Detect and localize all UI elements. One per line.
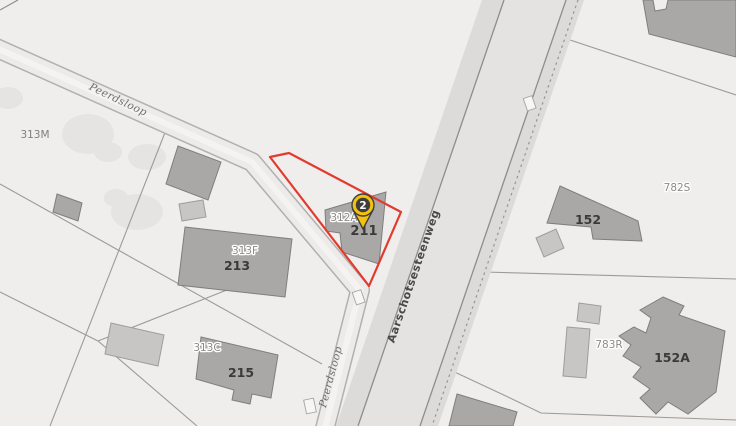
parcel-label-313F: 313F (232, 245, 258, 257)
marker-pin-number: 2 (359, 200, 366, 212)
parcel-label-313M: 313M (20, 129, 49, 141)
building (577, 303, 601, 324)
parcel-label-782S: 782S (664, 182, 691, 194)
building (179, 200, 206, 221)
map-viewport[interactable]: 313M 313F 213 313C 215 312A 211 152 782S… (0, 0, 736, 426)
parcel-label-152A: 152A (654, 350, 690, 365)
parcel-label-213: 213 (224, 258, 250, 273)
building (563, 327, 590, 378)
cadastral-map[interactable]: 313M 313F 213 313C 215 312A 211 152 782S… (0, 0, 736, 426)
parcel-label-215: 215 (228, 365, 254, 380)
parcel-label-313C: 313C (193, 342, 220, 354)
parcel-label-152: 152 (575, 212, 601, 227)
parcel-label-783R: 783R (595, 339, 622, 351)
